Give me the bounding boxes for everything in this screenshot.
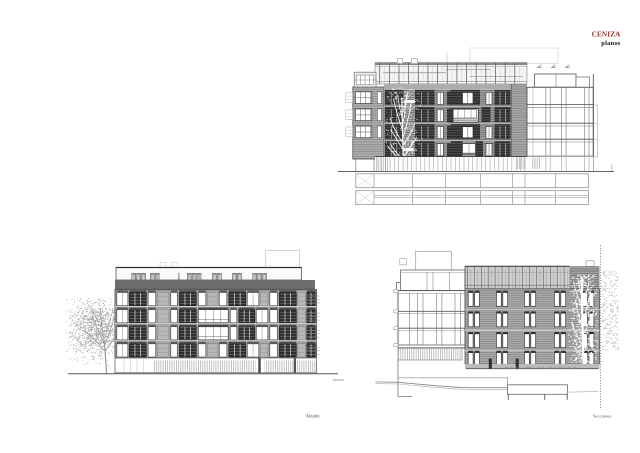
svg-text:planos: planos	[601, 40, 621, 47]
svg-text:Secciones: Secciones	[593, 414, 612, 419]
svg-text:CENIZA: CENIZA	[592, 31, 622, 39]
svg-text:Alzado: Alzado	[306, 415, 321, 420]
